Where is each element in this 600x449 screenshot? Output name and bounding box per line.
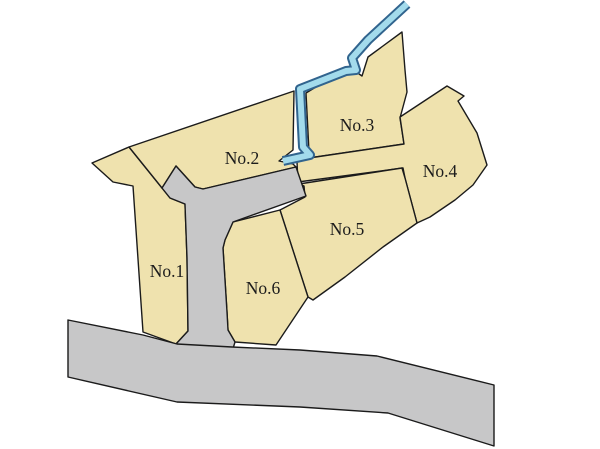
lot-map-drawing: No.1 No.2 No.3 No.4 No.5 No.6	[0, 0, 600, 449]
label-no1: No.1	[150, 261, 185, 281]
label-no5: No.5	[330, 219, 365, 239]
label-no3: No.3	[340, 115, 375, 135]
label-no6: No.6	[246, 278, 281, 298]
lot-subdivision-map: No.1 No.2 No.3 No.4 No.5 No.6	[0, 0, 600, 449]
label-no4: No.4	[423, 161, 458, 181]
label-no2: No.2	[225, 148, 260, 168]
